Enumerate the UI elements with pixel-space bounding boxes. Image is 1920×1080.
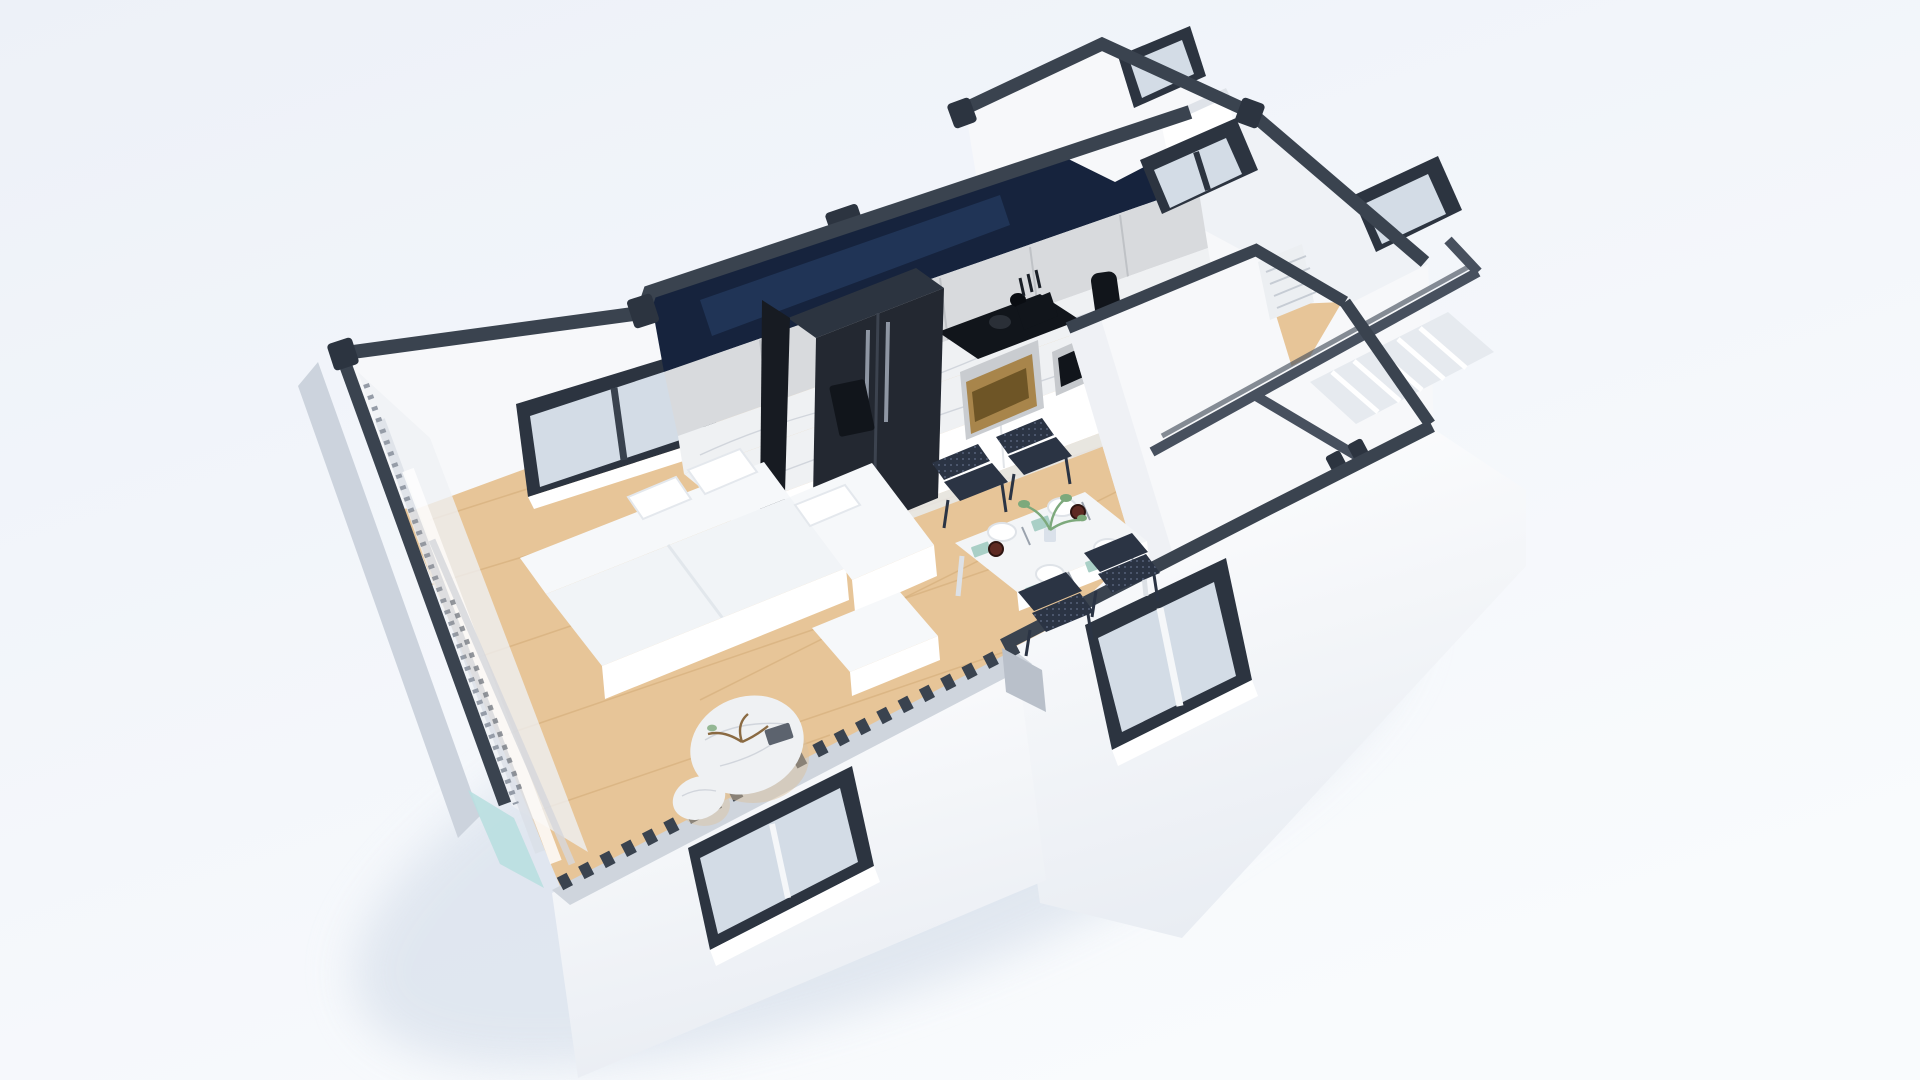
- floor-plan-canvas: [0, 0, 1920, 1080]
- red-bowl: [989, 542, 1003, 556]
- apartment-3d-floor-plan: [0, 0, 1920, 1080]
